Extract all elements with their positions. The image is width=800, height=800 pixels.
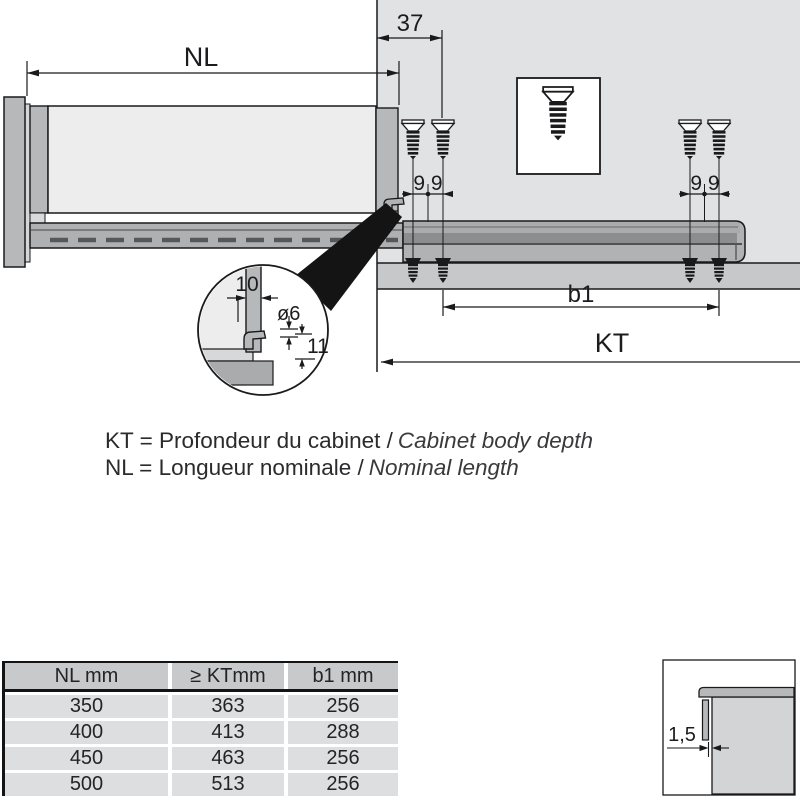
- dimension-label-gap: 1,5: [668, 724, 696, 746]
- legend-nl-fr: NL = Longueur nominale /: [105, 455, 364, 480]
- dimension-kt: [381, 359, 800, 366]
- legend-kt: KT = Profondeur du cabinet /Cabinet body…: [105, 427, 593, 454]
- legend-nl-en: Nominal length: [369, 455, 519, 480]
- drawer-step: [30, 213, 45, 223]
- table-cell: 256: [288, 747, 398, 770]
- col-header-kt: ≥ KTmm: [172, 663, 284, 689]
- col-header-b1: b1 mm: [288, 663, 398, 689]
- col-header-nl: NL mm: [5, 663, 168, 689]
- legend: KT = Profondeur du cabinet /Cabinet body…: [105, 427, 593, 481]
- table-cell: 450: [5, 747, 168, 770]
- table-cell: 413: [172, 721, 284, 744]
- table-row: 500 513 256: [5, 773, 398, 796]
- table-cell: 288: [288, 721, 398, 744]
- dimension-label-10: 10: [235, 273, 258, 296]
- legend-nl: NL = Longueur nominale /Nominal length: [105, 454, 593, 481]
- dimension-label-99-left: 9 9: [413, 172, 442, 195]
- drawer-front-panel: [4, 97, 25, 267]
- detail-callout-circle: 10 ø6 11: [197, 264, 329, 395]
- dimension-label-b1: b1: [568, 281, 595, 308]
- front-bracket: [30, 106, 48, 213]
- table-row: 400 413 288: [5, 721, 398, 744]
- dimensions-table: NL mm ≥ KTmm b1 mm 350 363 256 400 413 2…: [2, 661, 398, 796]
- table-cell: 256: [288, 695, 398, 718]
- table-row: 350 363 256: [5, 695, 398, 718]
- table-cell: 463: [172, 747, 284, 770]
- table-cell: 363: [172, 695, 284, 718]
- table-cell: 400: [5, 721, 168, 744]
- dimension-label-kt: KT: [595, 328, 630, 358]
- drawer-side-panel: [48, 106, 376, 213]
- dimension-label-nl: NL: [184, 42, 219, 72]
- gap-drawer-back: [703, 700, 709, 740]
- legend-kt-fr: KT = Profondeur du cabinet /: [105, 428, 393, 453]
- dimension-label-99-right: 9 9: [690, 172, 719, 195]
- gap-detail-box: 1,5: [663, 660, 795, 795]
- table-cell: 350: [5, 695, 168, 718]
- screw-inset-box: [517, 78, 600, 174]
- dimension-label-37: 37: [397, 10, 424, 37]
- table-cell: 513: [172, 773, 284, 796]
- table-header-row: NL mm ≥ KTmm b1 mm: [5, 663, 398, 692]
- dimension-label-o6: ø6: [277, 303, 300, 325]
- gap-top-rail: [699, 688, 794, 698]
- table-cell: 500: [5, 773, 168, 796]
- installation-sheet: NL 37 9 9 9 9 b1 KT: [0, 0, 800, 800]
- table-cell: 256: [288, 773, 398, 796]
- legend-kt-en: Cabinet body depth: [398, 428, 593, 453]
- gap-cabinet-panel: [712, 697, 794, 794]
- table-row: 450 463 256: [5, 747, 398, 770]
